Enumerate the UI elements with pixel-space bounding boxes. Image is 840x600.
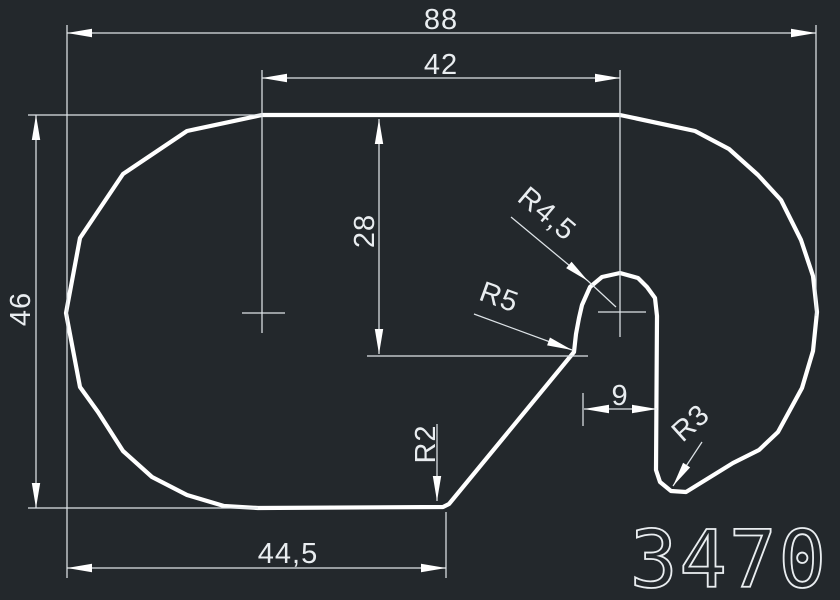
cad-drawing: 8842462844,59R4,5R5R2R33470 bbox=[0, 0, 840, 600]
dim-overall-width-label: 88 bbox=[424, 4, 458, 36]
dim-overall-height-label: 46 bbox=[5, 292, 37, 326]
drawing-background bbox=[0, 0, 840, 600]
cad-viewport: 8842462844,59R4,5R5R2R33470 bbox=[0, 0, 840, 600]
part-number-text: 3470 bbox=[630, 514, 828, 600]
dim-top-flat-label: 42 bbox=[424, 49, 458, 81]
dim-slot-width-label: 9 bbox=[611, 380, 628, 412]
dim-tab-depth-label: 28 bbox=[349, 214, 381, 248]
radius-bottom-corner-label: R2 bbox=[410, 424, 442, 463]
dim-bottom-flat-label: 44,5 bbox=[258, 538, 318, 570]
